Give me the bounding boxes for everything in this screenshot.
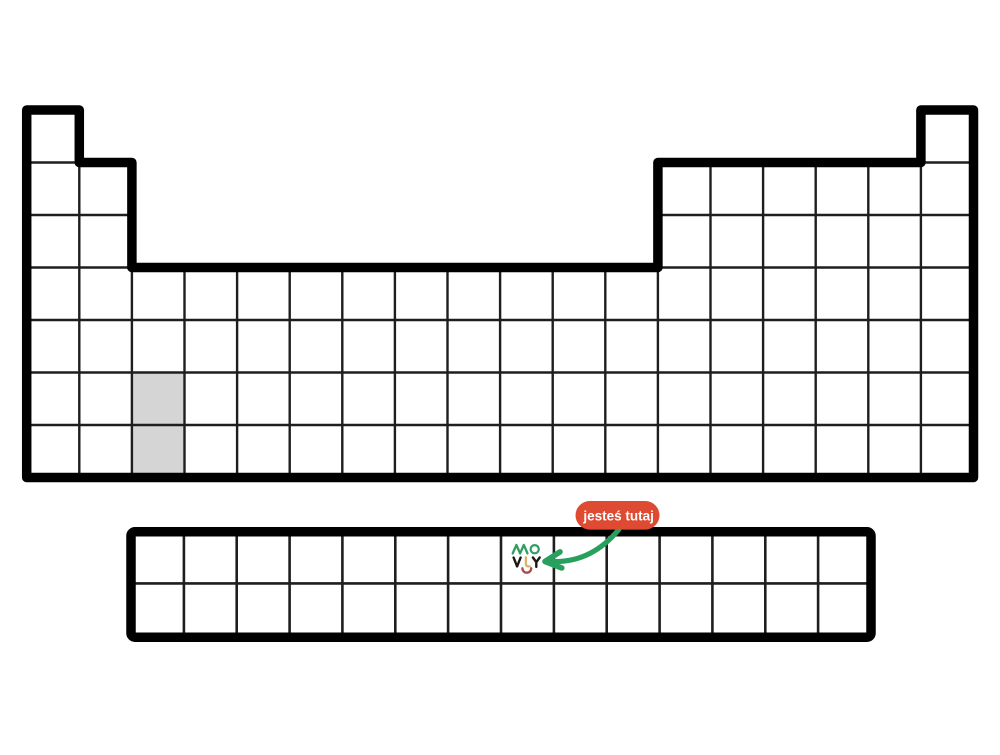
svg-text:jesteś tutaj: jesteś tutaj (582, 509, 654, 524)
